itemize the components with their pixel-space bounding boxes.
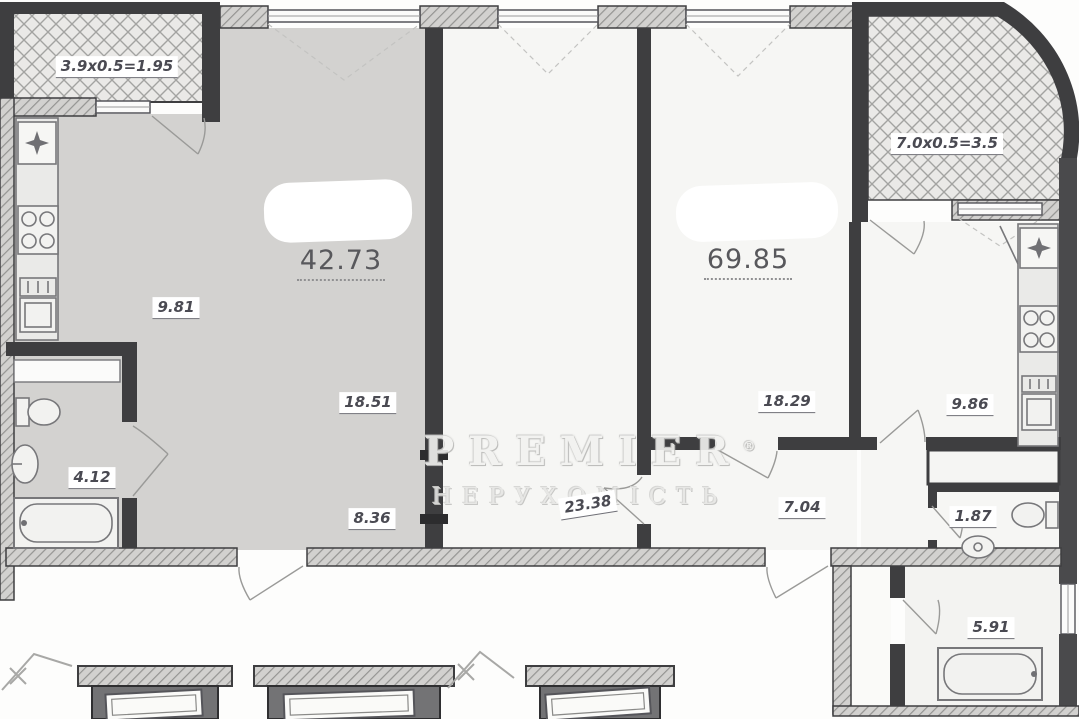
elevator-shaft	[254, 666, 454, 719]
area-label-kitchen-left: 9.81	[152, 297, 199, 319]
elevator-shaft	[78, 666, 232, 719]
area-label-bedroom-right: 18.29	[758, 391, 815, 413]
floor-plan: PREMIER® НЕРУХОМІСТЬ 3.9x0.5=1.95 42.73 …	[0, 0, 1079, 719]
closet	[928, 450, 1059, 484]
elevator-shaft	[526, 666, 674, 719]
area-label-bath-right: 5.91	[967, 617, 1014, 639]
elevators	[78, 666, 674, 719]
erasure-blob	[263, 178, 413, 243]
area-label-bath-left: 4.12	[68, 467, 115, 489]
area-label-kitchen-right: 9.86	[946, 394, 993, 416]
area-label-balcony-left: 3.9x0.5=1.95	[56, 56, 178, 78]
area-label-room-left: 18.51	[339, 392, 396, 414]
area-label-hall-right: 7.04	[778, 497, 825, 519]
toilet-fixture	[16, 398, 29, 426]
kitchen-left-fixtures	[16, 118, 58, 340]
area-label-apartment-right-total: 69.85	[704, 244, 792, 280]
bathroom-right-fixtures	[938, 648, 1042, 700]
toilet-fixture	[1046, 502, 1058, 528]
area-label-balcony-right: 7.0x0.5=3.5	[891, 133, 1003, 155]
area-label-wc-right: 1.87	[949, 506, 996, 528]
area-label-apartment-left-total: 42.73	[297, 245, 385, 281]
washbasin-fixture	[962, 536, 994, 558]
erasure-blob	[675, 181, 839, 243]
area-label-hall-left: 8.36	[348, 508, 395, 530]
floor-plan-drawing	[0, 0, 1079, 719]
